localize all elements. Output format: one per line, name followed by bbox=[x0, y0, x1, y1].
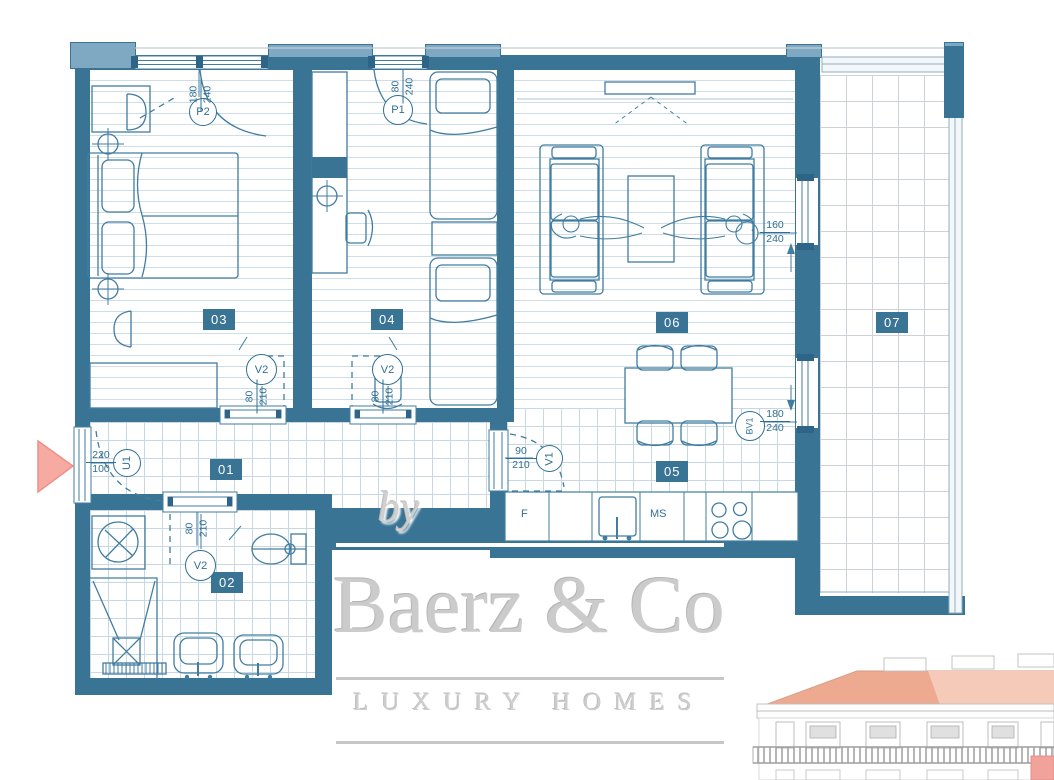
balcony-window-and-door bbox=[758, 174, 818, 433]
room-badge-bedroom-2: 04 bbox=[371, 309, 403, 330]
room-badge-living: 06 bbox=[656, 312, 688, 333]
watermark-divider-bottom bbox=[336, 741, 724, 744]
room-badge-balcony: 07 bbox=[876, 312, 908, 333]
tag-door-v1: V1 bbox=[536, 445, 563, 472]
room-badge-kitchen: 05 bbox=[656, 461, 688, 482]
entrance-arrow bbox=[38, 441, 73, 492]
room-badge-bedroom-1: 03 bbox=[203, 309, 235, 330]
fridge-label: F bbox=[521, 508, 528, 520]
top-windows bbox=[131, 56, 429, 136]
ms-label: MS bbox=[650, 508, 667, 520]
dim-v2-bedroom-1: 80210 bbox=[245, 380, 270, 414]
person-figures bbox=[551, 214, 758, 244]
living-room-furniture bbox=[517, 82, 793, 446]
watermark-brand: Baerz & Co bbox=[322, 552, 736, 657]
dim-v2-bedroom-2: 80210 bbox=[371, 380, 396, 414]
watermark-tagline: LUXURY HOMES bbox=[326, 689, 732, 717]
bedroom-03-furniture bbox=[88, 86, 238, 408]
plan-graphics bbox=[0, 0, 1054, 780]
watermark-divider-middle bbox=[336, 677, 724, 680]
dim-v2-bathroom: 80210 bbox=[185, 512, 210, 546]
highlighted-unit bbox=[1031, 756, 1054, 780]
watermark-divider-top bbox=[336, 543, 724, 547]
room-badge-hallway: 01 bbox=[210, 459, 242, 480]
dim-window-160: 160240 bbox=[760, 220, 790, 245]
dim-v1: 90210 bbox=[506, 446, 536, 471]
room-badge-bathroom: 02 bbox=[211, 572, 243, 593]
dim-p1: 80240 bbox=[391, 70, 416, 104]
dim-p2: 180240 bbox=[189, 78, 214, 112]
floor-plan: 01 02 03 04 05 06 07 P2 P1 U1 V2 V2 V2 V… bbox=[0, 0, 1054, 780]
watermark-by: by bbox=[378, 482, 420, 533]
tag-door-v2-bathroom: V2 bbox=[185, 550, 216, 581]
dim-u1: 220100 bbox=[86, 450, 116, 475]
tag-door-u1: U1 bbox=[113, 449, 141, 477]
dim-bv1: 180240 bbox=[760, 409, 790, 434]
building-elevation bbox=[753, 654, 1054, 780]
